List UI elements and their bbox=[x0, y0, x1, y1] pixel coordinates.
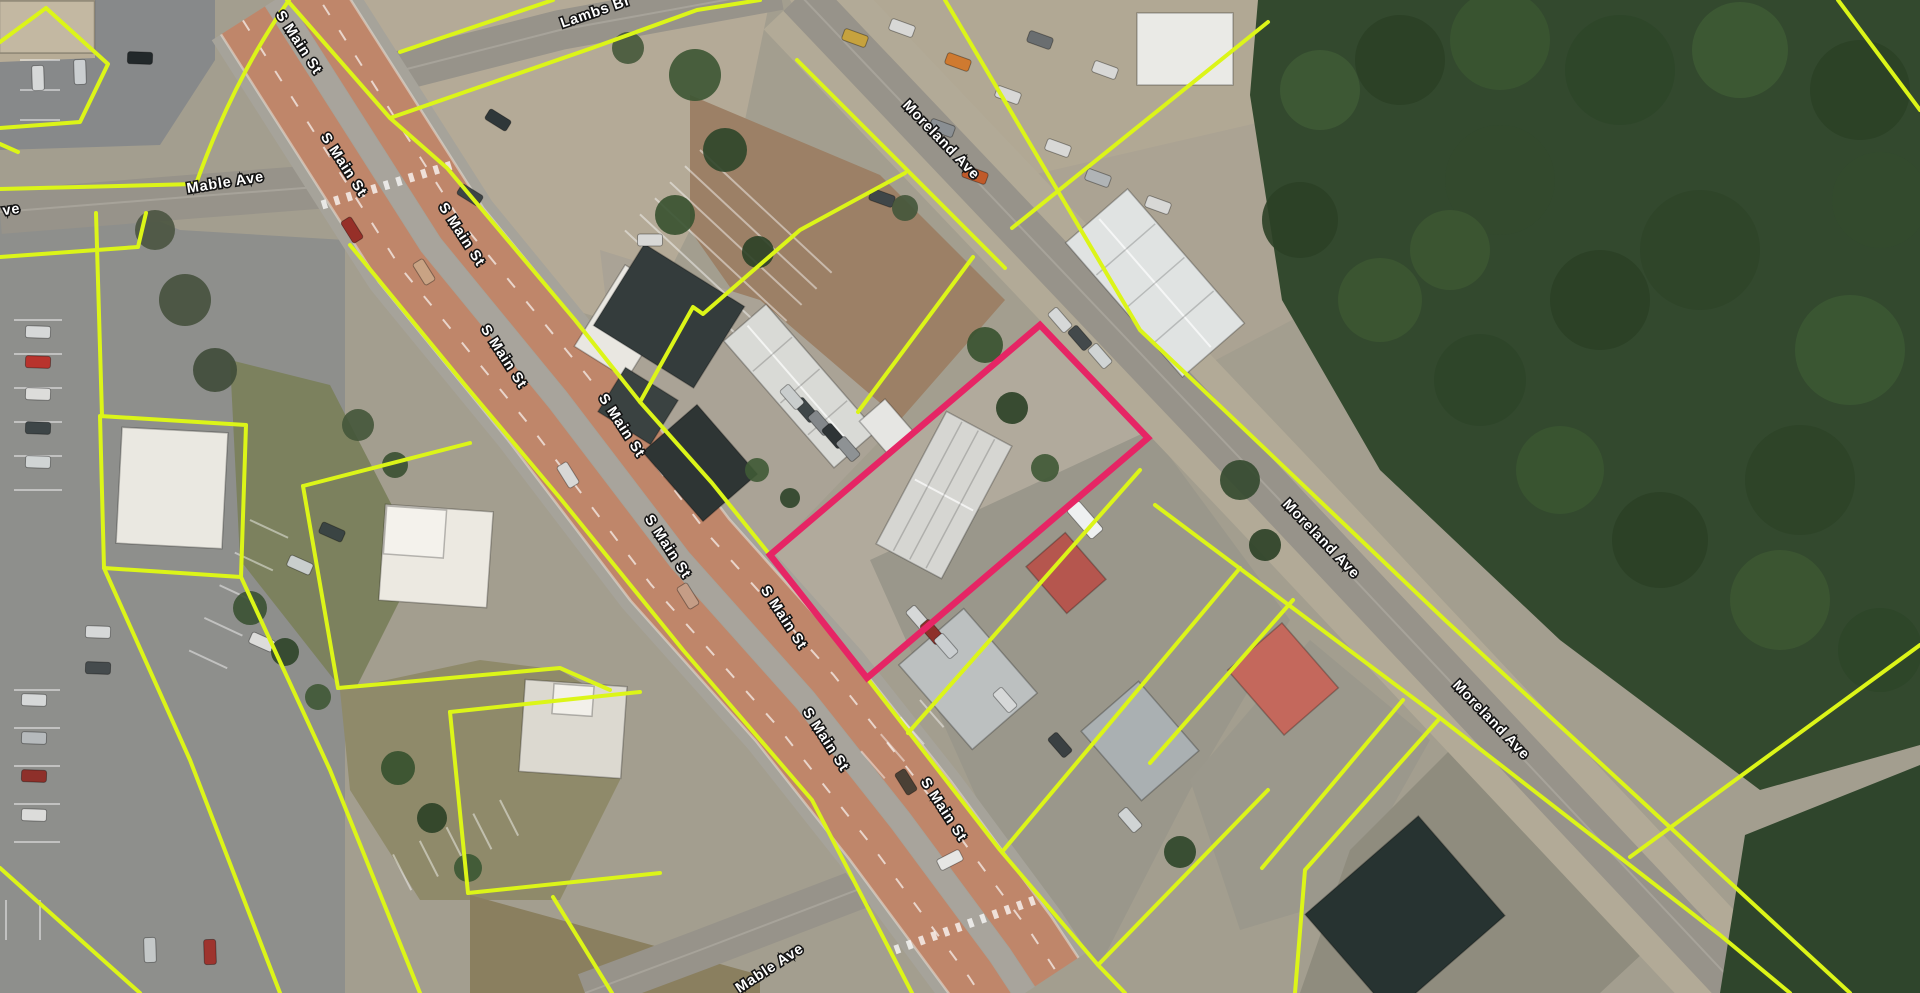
tree-canopy bbox=[342, 409, 374, 441]
tree-canopy bbox=[1355, 15, 1445, 105]
tree-canopy bbox=[1730, 550, 1830, 650]
street-label: ve bbox=[2, 201, 22, 219]
tree-canopy bbox=[159, 274, 211, 326]
tree-canopy bbox=[1280, 50, 1360, 130]
tree-canopy bbox=[1810, 40, 1910, 140]
tree-canopy bbox=[193, 348, 237, 392]
vehicle bbox=[25, 326, 50, 339]
tree-canopy bbox=[742, 236, 774, 268]
vehicle bbox=[25, 456, 50, 469]
tree-canopy bbox=[780, 488, 800, 508]
tree-canopy bbox=[381, 751, 415, 785]
tree-canopy bbox=[1338, 258, 1422, 342]
building bbox=[383, 506, 446, 558]
tree-canopy bbox=[703, 128, 747, 172]
vehicle bbox=[204, 939, 217, 964]
vehicle bbox=[21, 809, 46, 822]
tree-canopy bbox=[1795, 295, 1905, 405]
tree-canopy bbox=[1434, 334, 1526, 426]
tree-canopy bbox=[1692, 2, 1788, 98]
tree-canopy bbox=[1745, 425, 1855, 535]
tree-canopy bbox=[996, 392, 1028, 424]
tree-canopy bbox=[655, 195, 695, 235]
building bbox=[116, 427, 228, 548]
vehicle bbox=[127, 52, 152, 65]
mable-top-road bbox=[0, 186, 330, 212]
tree-canopy bbox=[745, 458, 769, 482]
vehicle bbox=[21, 732, 46, 745]
vehicle bbox=[85, 626, 110, 639]
vehicle bbox=[74, 59, 87, 84]
vehicle bbox=[21, 770, 46, 783]
tree-canopy bbox=[1640, 190, 1760, 310]
tree-canopy bbox=[1550, 250, 1650, 350]
vehicle bbox=[638, 234, 663, 246]
tree-canopy bbox=[305, 684, 331, 710]
tree-canopy bbox=[892, 195, 918, 221]
building bbox=[1137, 13, 1233, 85]
tree-canopy bbox=[669, 49, 721, 101]
tree-canopy bbox=[1031, 454, 1059, 482]
vehicle bbox=[25, 388, 50, 401]
tree-canopy bbox=[1838, 608, 1920, 692]
map-canvas[interactable]: S Main StS Main StS Main StS Main StS Ma… bbox=[0, 0, 1920, 993]
tree-canopy bbox=[1410, 210, 1490, 290]
vehicle bbox=[32, 65, 45, 90]
tree-canopy bbox=[1565, 15, 1675, 125]
tree-canopy bbox=[1249, 529, 1281, 561]
tree-canopy bbox=[417, 803, 447, 833]
tree-canopy bbox=[1516, 426, 1604, 514]
vehicle bbox=[144, 937, 157, 962]
vehicle bbox=[25, 356, 50, 369]
vehicle bbox=[85, 662, 110, 675]
tree-canopy bbox=[1262, 182, 1338, 258]
tree-canopy bbox=[1220, 460, 1260, 500]
tree-canopy bbox=[1612, 492, 1708, 588]
vehicle bbox=[25, 422, 50, 435]
aerial-parcel-map: S Main StS Main StS Main StS Main StS Ma… bbox=[0, 0, 1920, 993]
tree-canopy bbox=[1164, 836, 1196, 868]
vehicle bbox=[21, 694, 46, 707]
